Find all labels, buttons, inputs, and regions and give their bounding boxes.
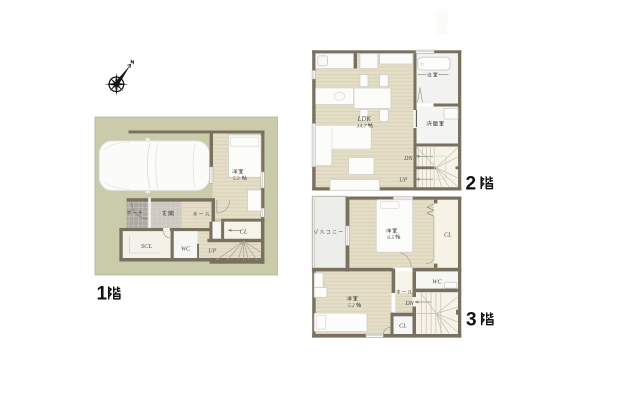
svg-text:6.5: 6.5 <box>387 235 394 241</box>
svg-text:5.3: 5.3 <box>233 176 240 182</box>
svg-text:5.2: 5.2 <box>348 303 355 309</box>
svg-text:DN: DN <box>404 301 414 307</box>
svg-text:UP: UP <box>399 178 407 184</box>
svg-text:CL: CL <box>399 323 407 330</box>
svg-text:UP: UP <box>208 249 216 255</box>
svg-text:WC: WC <box>432 278 442 285</box>
svg-text:3: 3 <box>466 309 477 330</box>
svg-text:2: 2 <box>466 173 477 194</box>
svg-text:LDK: LDK <box>357 116 372 123</box>
svg-text:WC: WC <box>181 246 191 253</box>
svg-text:SCL: SCL <box>141 243 153 250</box>
svg-text:14.7: 14.7 <box>357 124 367 130</box>
svg-text:CL: CL <box>444 231 452 238</box>
svg-text:CL: CL <box>240 228 248 235</box>
svg-text:DN: DN <box>403 156 413 162</box>
svg-text:1: 1 <box>97 284 108 305</box>
